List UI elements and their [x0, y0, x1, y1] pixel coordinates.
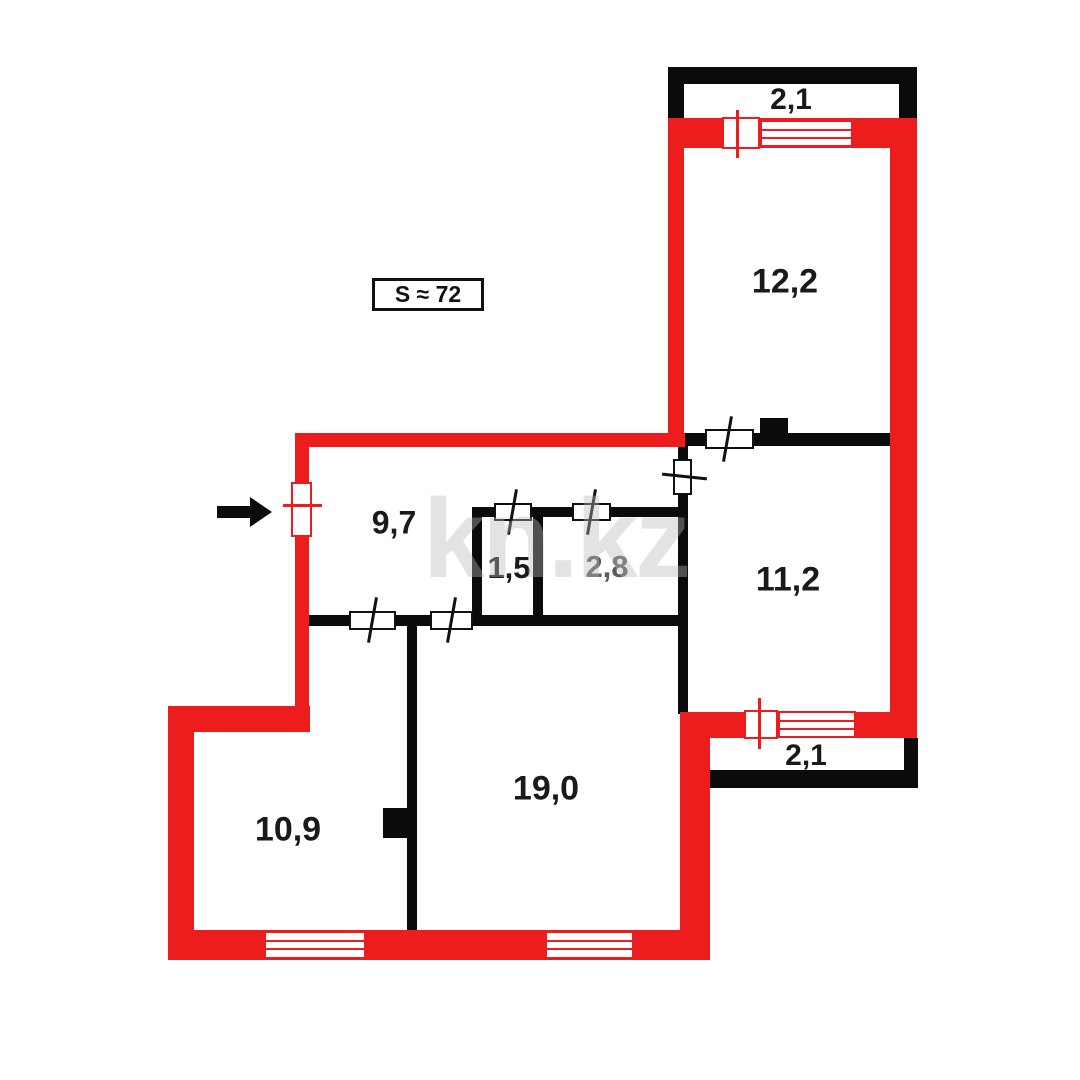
site-watermark: kn.kz: [423, 483, 688, 595]
room-label-bathroom: 1,5: [487, 550, 530, 586]
vent-shaft-left: [383, 808, 407, 838]
balcony-bottom-wall-right: [904, 738, 918, 788]
room-label-toilet: 2,8: [585, 549, 628, 585]
exterior-wall-bedroomtop-left: [668, 118, 684, 447]
window-room112: [778, 711, 856, 738]
room-label-bedroom-left: 10,9: [255, 811, 321, 850]
exterior-wall-hall-left: [295, 433, 309, 732]
balcony-top-wall-right: [899, 67, 917, 119]
room-label-hallway: 9,7: [372, 505, 416, 542]
room-label-balcony-bottom: 2,1: [785, 739, 827, 773]
entrance-door-mark: [283, 504, 322, 507]
room-label-living-room: 19,0: [513, 770, 579, 809]
window-bedroom-top: [760, 120, 853, 147]
window-living-room: [545, 931, 634, 959]
balcony-top-door: [722, 117, 760, 149]
entrance-arrow-icon: [217, 506, 250, 518]
exterior-wall-hall-top: [295, 433, 685, 447]
room-label-balcony-top: 2,1: [770, 83, 812, 117]
balcony-top-door-mark: [736, 110, 739, 158]
total-area-badge: S ≈ 72: [372, 278, 484, 311]
window-bedroom-left: [264, 931, 366, 959]
exterior-wall-living-right: [680, 712, 710, 960]
wall-bath-toilet-divider: [533, 507, 543, 625]
balcony-bottom-door-mark: [758, 698, 761, 749]
wall-bath-left: [472, 507, 482, 625]
entrance-arrow-icon: [250, 497, 272, 527]
vent-shaft-top: [760, 418, 788, 434]
entrance-door: [291, 482, 312, 537]
balcony-top-wall-left: [668, 67, 684, 119]
wall-bedroomleft-living: [407, 626, 417, 932]
exterior-wall-right: [890, 118, 917, 738]
room-label-bedroom-top: 12,2: [752, 263, 818, 302]
balcony-top-wall: [668, 67, 917, 84]
exterior-wall-left: [168, 706, 194, 960]
floor-plan: S ≈ 72 2,1 12,2 11,2 9,7 1,5 2,8 19,0 10…: [0, 0, 1080, 1080]
balcony-bottom-door: [744, 710, 778, 739]
room-label-room-right: 11,2: [756, 561, 820, 600]
